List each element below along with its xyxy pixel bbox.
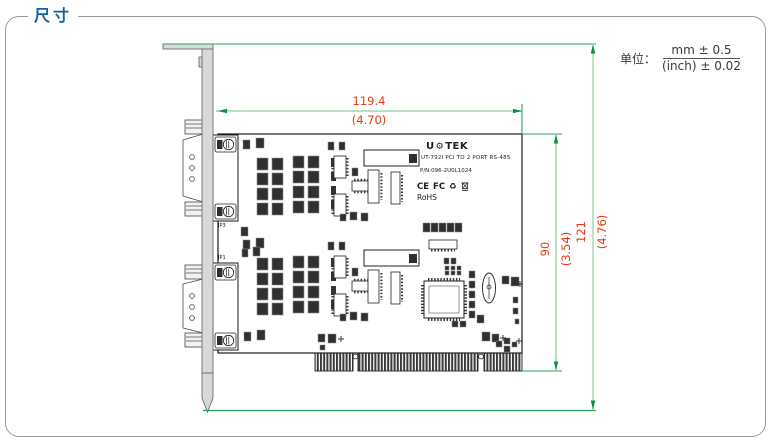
dim-width-inch: (4.70)	[321, 114, 417, 126]
product-name: UT-792I PCI TO 2 PORT RS-485	[421, 155, 511, 161]
fcc-mark: FC	[433, 182, 445, 192]
dim-total-height-inch: (4.76)	[596, 197, 608, 267]
dim-total-height-mm: 121	[575, 197, 587, 267]
mounting-bracket	[163, 44, 213, 412]
ce-mark: CE	[417, 182, 429, 192]
weee-bin-icon	[461, 181, 469, 192]
dim-board-height-inch: (3.54)	[560, 214, 572, 284]
dim-board-height-mm: 90	[539, 214, 551, 284]
rohs-label: RoHS	[417, 193, 437, 202]
brand-prefix: U	[426, 141, 435, 152]
crystal-oscillator	[483, 273, 496, 303]
recycle-mark: ♻	[449, 182, 457, 192]
qfp-chip	[422, 279, 465, 319]
gear-icon: ⚙	[436, 142, 445, 152]
connector-key-notch	[353, 354, 358, 359]
jumper-label-lower: JP1	[218, 255, 226, 261]
edge-connector	[315, 353, 522, 371]
brand-logo: U⚙TEK	[426, 141, 468, 152]
dimension-figure: 尺寸 单位： mm ± 0.5 (inch) ± 0.02	[0, 0, 770, 448]
jumper-label-upper: JP3	[218, 223, 226, 229]
pci-card-drawing	[0, 0, 770, 448]
part-number: P/N:096-2U0L1024	[420, 168, 472, 174]
connector-key-notch	[479, 354, 484, 359]
brand-suffix: TEK	[445, 141, 468, 152]
certification-marks: CE FC ♻	[417, 181, 469, 192]
dim-width-mm: 119.4	[321, 95, 417, 107]
small-dip-ic	[429, 240, 457, 250]
